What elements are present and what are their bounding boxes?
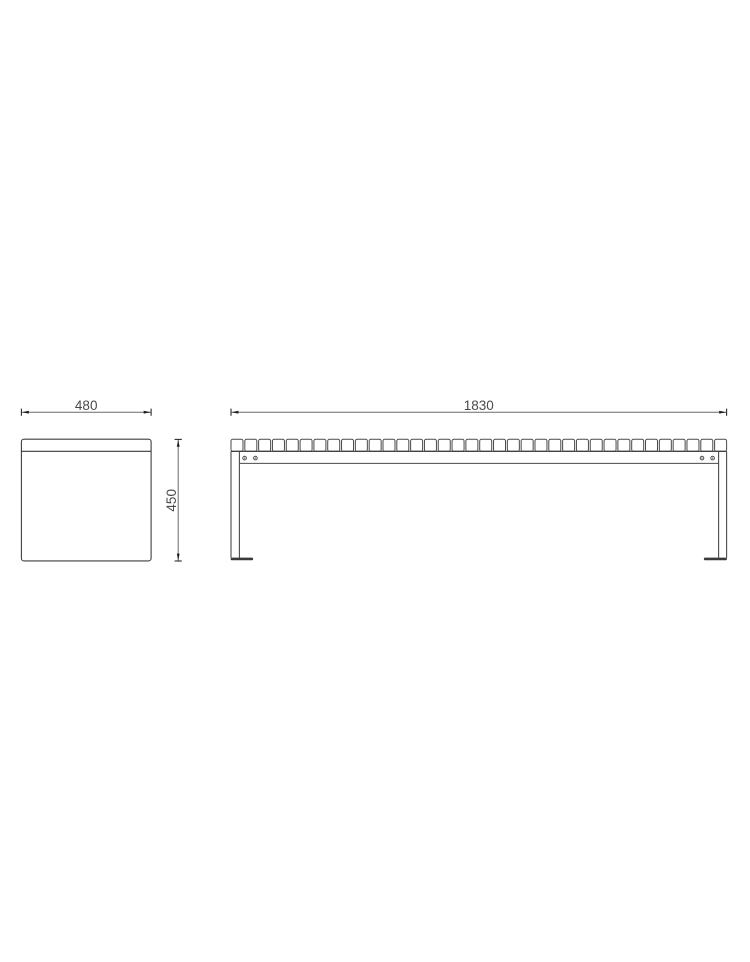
svg-text:1830: 1830 — [464, 398, 494, 413]
svg-text:450: 450 — [164, 489, 179, 512]
svg-text:480: 480 — [75, 398, 98, 413]
